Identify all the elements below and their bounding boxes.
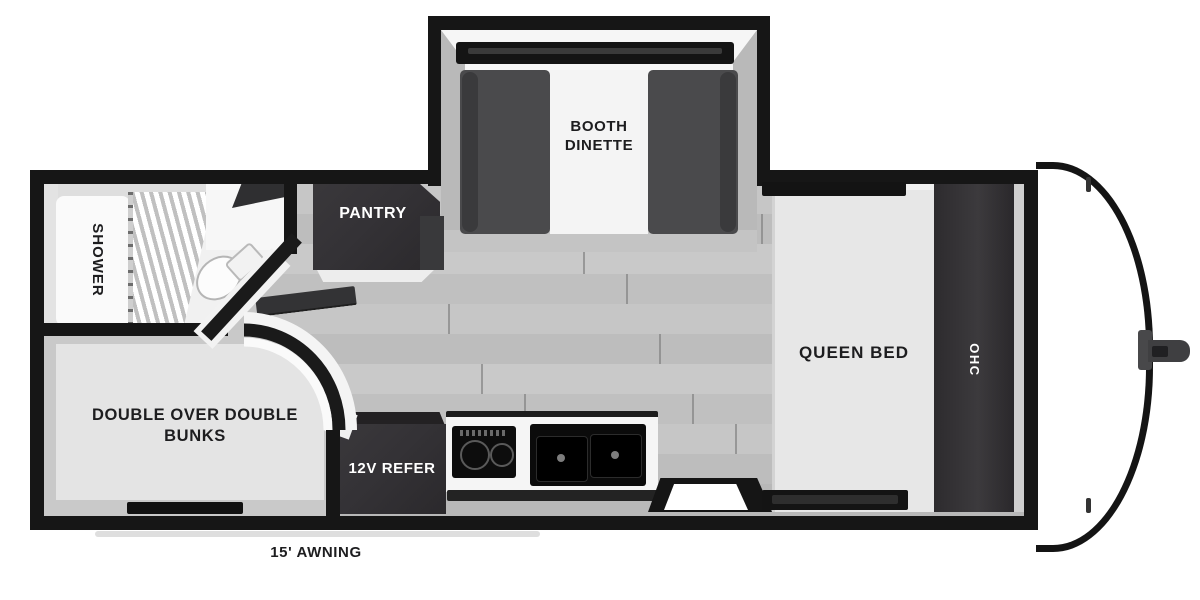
bunks-label: DOUBLE OVER DOUBLE BUNKS <box>60 405 330 446</box>
burner-left <box>460 440 490 470</box>
cap-vent-top <box>1086 177 1091 192</box>
cap-vent-bottom <box>1086 498 1091 513</box>
entry-door-step <box>664 484 748 510</box>
floorplan-canvas: BOOTH DINETTE SHOWER DOUBLE OVER DOUBLE … <box>0 0 1200 600</box>
awning-line <box>95 531 540 537</box>
sink-drain-right <box>611 451 619 459</box>
bathroom-wall-right <box>284 184 297 254</box>
bed-window-top <box>762 182 906 196</box>
queen-bed-label: QUEEN BED <box>772 342 936 363</box>
bunk-wall-right <box>326 420 340 516</box>
exterior-wall-top-left <box>30 170 435 184</box>
refrigerator-label: 12V REFER <box>338 460 446 479</box>
shower-curtain <box>133 192 215 326</box>
exterior-wall-bottom <box>30 516 1038 530</box>
burner-right <box>490 443 514 467</box>
slide-side-cabinet <box>420 216 444 270</box>
slide-wall-left <box>428 16 441 186</box>
booth-seat-right <box>648 70 738 234</box>
kitchen-sink <box>530 424 646 486</box>
bathroom-wall-bottom <box>30 323 228 336</box>
ohc-label: OHC <box>966 328 982 392</box>
pantry-label: PANTRY <box>313 204 433 224</box>
booth-dinette-label: BOOTH DINETTE <box>554 118 644 156</box>
bed-window-bottom <box>762 490 908 510</box>
booth-seat-left <box>460 70 550 234</box>
hitch-notch <box>1152 346 1168 357</box>
bunk-window <box>127 502 243 514</box>
exterior-wall-right <box>1024 170 1038 530</box>
front-cap <box>1036 162 1153 552</box>
awning-label: 15' AWNING <box>226 544 406 563</box>
pantry-counter-front <box>316 268 436 282</box>
slide-wall-right <box>757 16 770 186</box>
slide-wall-top <box>428 16 770 30</box>
sink-drain-left <box>557 454 565 462</box>
shower-curtain-rod <box>128 192 133 326</box>
cooktop <box>452 426 516 478</box>
exterior-wall-left <box>30 170 44 530</box>
shower-label: SHOWER <box>86 205 106 315</box>
dinette-window <box>456 42 734 64</box>
